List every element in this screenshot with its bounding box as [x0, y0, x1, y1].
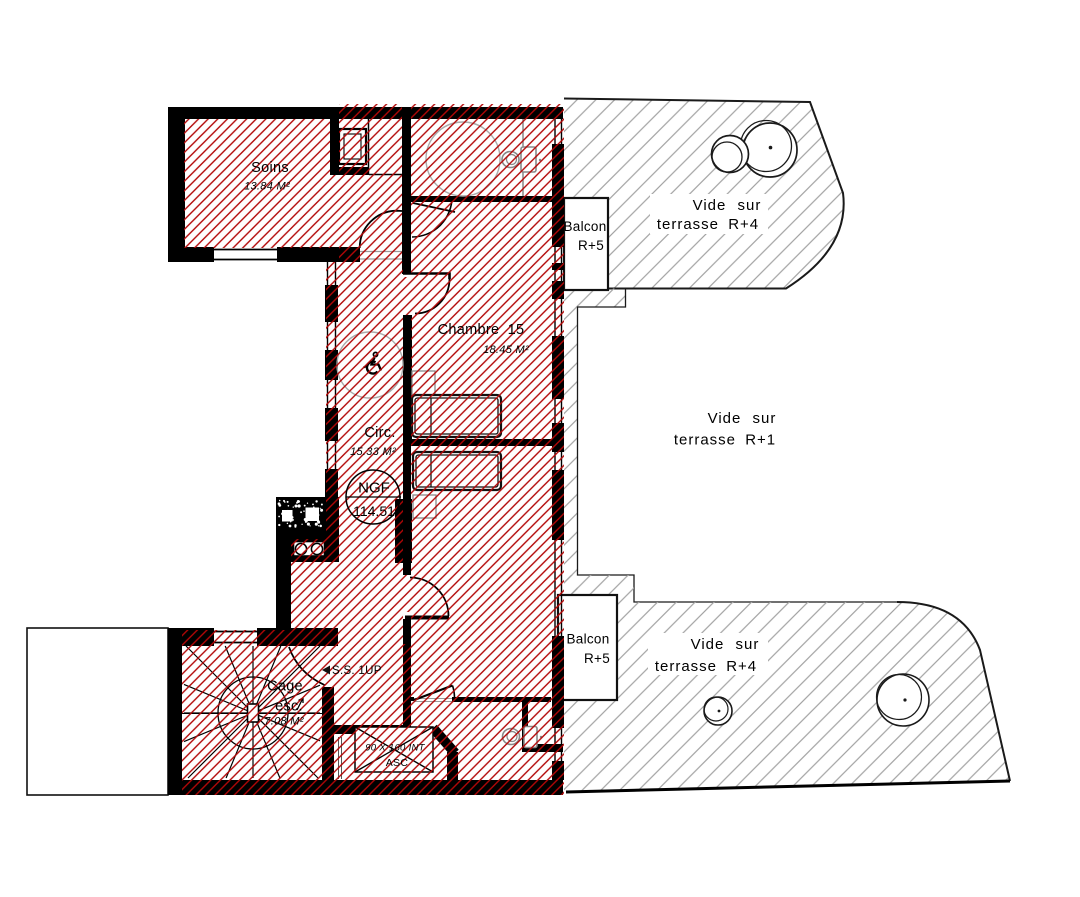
- svg-text:Cage: Cage: [267, 679, 303, 695]
- svg-text:114.51: 114.51: [353, 503, 395, 519]
- svg-text:Chambre 15: Chambre 15: [438, 322, 525, 338]
- svg-text:7.08 M²: 7.08 M²: [264, 716, 303, 728]
- svg-text:Soins: Soins: [251, 160, 289, 176]
- svg-text:90 X 160 INT: 90 X 160 INT: [365, 743, 425, 754]
- svg-text:terrasse R+4: terrasse R+4: [657, 216, 759, 233]
- svg-text:R+5: R+5: [578, 238, 604, 253]
- svg-text:R+5: R+5: [584, 651, 610, 666]
- svg-text:Vide sur: Vide sur: [708, 410, 777, 427]
- svg-text:18.45 M²: 18.45 M²: [483, 344, 529, 356]
- svg-text:Balcon: Balcon: [566, 632, 609, 647]
- svg-text:terrasse R+4: terrasse R+4: [655, 658, 757, 675]
- svg-text:ASC: ASC: [386, 757, 409, 769]
- svg-text:esc.: esc.: [275, 699, 303, 715]
- svg-text:Balcon: Balcon: [563, 219, 606, 234]
- svg-text:Vide sur: Vide sur: [691, 636, 760, 653]
- svg-text:terrasse R+1: terrasse R+1: [674, 432, 776, 449]
- svg-text:13.84 M²: 13.84 M²: [244, 181, 290, 193]
- svg-text:15.33 M²: 15.33 M²: [350, 446, 396, 458]
- svg-text:NGF: NGF: [358, 480, 390, 497]
- svg-text:S.S. 1UP: S.S. 1UP: [332, 665, 382, 677]
- svg-text:Vide sur: Vide sur: [693, 197, 762, 214]
- svg-text:Circ.: Circ.: [364, 425, 395, 441]
